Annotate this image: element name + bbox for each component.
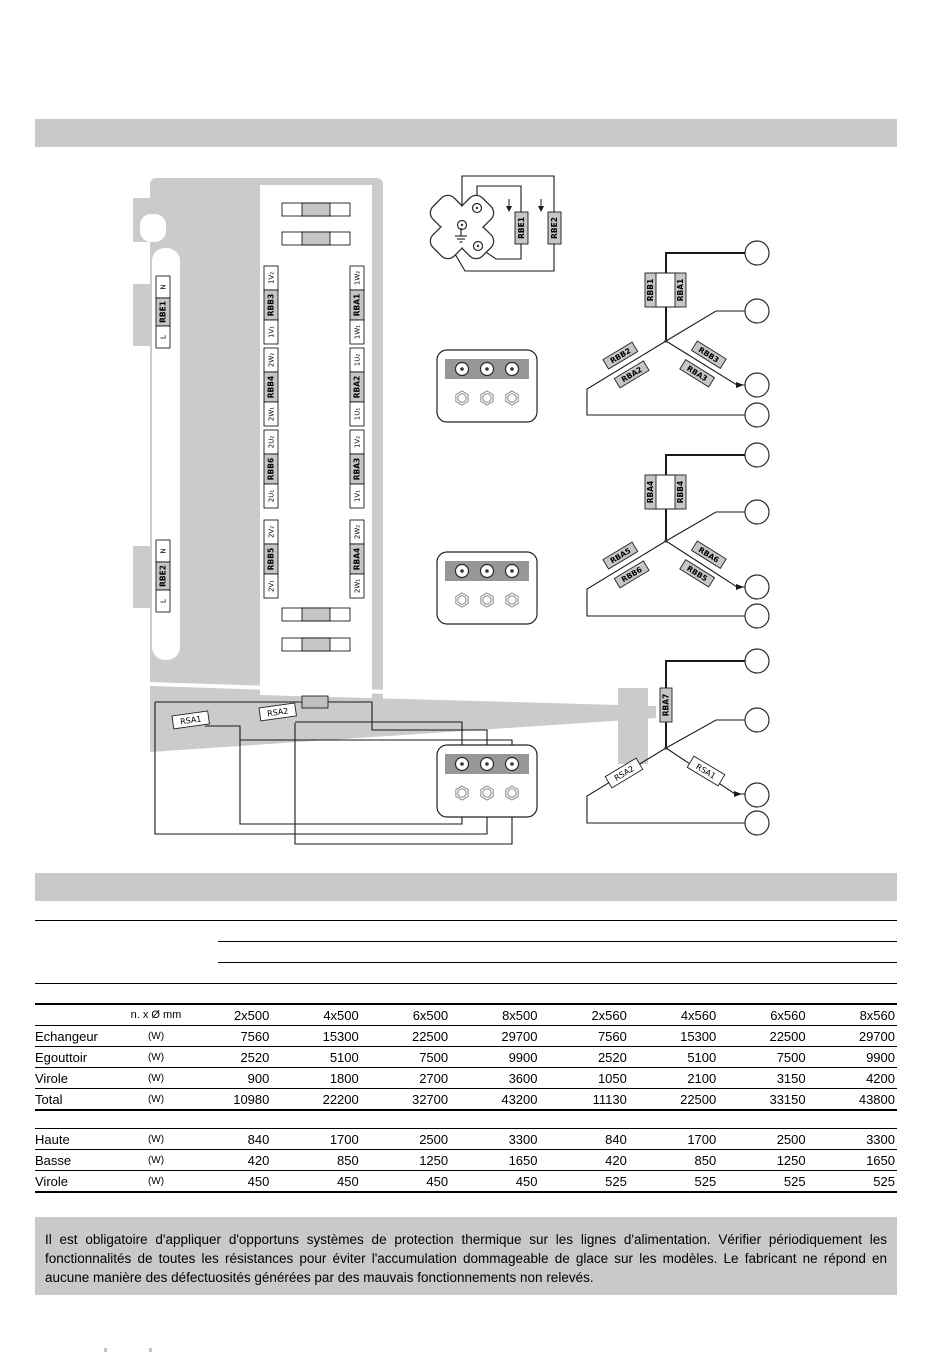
table-header-row: n. x Ø mm 2x500 4x500 6x500 8x500 2x560 …	[35, 1003, 897, 1026]
panel-label-rbb6: 2U₂ RBB6 2U₁	[264, 430, 278, 508]
column-header: 2x500	[182, 1008, 271, 1023]
svg-text:RBE1: RBE1	[517, 217, 526, 239]
svg-text:2V₁: 2V₁	[268, 580, 276, 592]
arrow-down-icon	[506, 199, 544, 212]
column-header: 8x500	[450, 1008, 539, 1023]
panel-label-rba1: 1W₂ RBA1 1W₁	[350, 266, 364, 344]
svg-text:RBA1: RBA1	[676, 279, 685, 302]
svg-text:RBE2: RBE2	[550, 217, 559, 239]
warning-note: Il est obligatoire d'appliquer d'opportu…	[35, 1217, 897, 1295]
table-row: Echangeur (W) 756015300 2250029700 75601…	[35, 1026, 897, 1047]
terminal-circle	[745, 604, 769, 628]
rule	[35, 920, 897, 921]
svg-text:RBB1: RBB1	[646, 279, 655, 301]
svg-text:RBE1: RBE1	[159, 301, 168, 323]
svg-text:1V₂: 1V₂	[268, 272, 276, 284]
column-header: 6x560	[718, 1008, 807, 1023]
svg-text:RBA4: RBA4	[353, 548, 362, 571]
svg-text:N: N	[160, 548, 168, 553]
svg-text:1V₂: 1V₂	[354, 436, 362, 448]
column-header: 6x500	[361, 1008, 450, 1023]
terminal-circle	[745, 708, 769, 732]
rule	[218, 941, 897, 942]
svg-text:1U₂: 1U₂	[354, 354, 362, 367]
svg-text:2W₂: 2W₂	[354, 525, 362, 539]
wye-circuit-3: RBA7 RSA2 RSA1	[587, 649, 769, 835]
panel-label-rba2: 1U₂ RBA2 1U₁	[350, 348, 364, 426]
rule	[218, 962, 897, 963]
wiring-diagram: N RBE1 L N RBE2 L 1V₂ RBB3 1V₁ 2W₂ RBB4 …	[0, 0, 950, 870]
terminal-circle	[745, 811, 769, 835]
terminal-circle	[745, 649, 769, 673]
svg-text:RBA1: RBA1	[353, 294, 362, 317]
svg-text:RBE2: RBE2	[159, 565, 168, 587]
svg-text:2W₂: 2W₂	[268, 353, 276, 367]
svg-text:2V₂: 2V₂	[268, 526, 276, 538]
panel-label-rbb5: 2V₂ RBB5 2V₁	[264, 520, 278, 598]
svg-text:RBB6: RBB6	[267, 458, 276, 480]
svg-text:1W₁: 1W₁	[354, 325, 362, 339]
table-row: Virole (W) 450450 450450 525525 525525	[35, 1171, 897, 1193]
size-header: n. x Ø mm	[130, 1009, 182, 1021]
svg-text:RBB4: RBB4	[267, 376, 276, 398]
terminal-circle	[745, 783, 769, 807]
edge-label-rbe1: N RBE1 L	[156, 276, 170, 348]
footer-artifact	[104, 1348, 107, 1352]
machine-silhouette	[133, 178, 656, 764]
table-section-band	[35, 873, 897, 901]
panel-label-rbb3: 1V₂ RBB3 1V₁	[264, 266, 278, 344]
terminal-circle	[745, 443, 769, 467]
table-row: Haute (W) 8401700 25003300 8401700 25003…	[35, 1128, 897, 1150]
svg-text:RBA2: RBA2	[353, 376, 362, 399]
svg-text:RBB5: RBB5	[267, 548, 276, 570]
terminal-block-1	[437, 350, 537, 422]
terminal-circle	[745, 299, 769, 323]
svg-text:N: N	[160, 284, 168, 289]
edge-label-rbe2: N RBE2 L	[156, 540, 170, 612]
panel-label-rba3: 1V₂ RBA3 1V₁	[350, 430, 364, 508]
rule	[35, 983, 897, 984]
table-row-total: Total (W) 1098022200 3270043200 11130225…	[35, 1089, 897, 1111]
terminal-circle	[745, 241, 769, 265]
svg-text:RBA4: RBA4	[646, 481, 655, 504]
svg-text:RBA7: RBA7	[662, 694, 671, 717]
terminal-circle	[745, 373, 769, 397]
terminal-circle	[745, 575, 769, 599]
svg-text:1V₁: 1V₁	[268, 326, 276, 338]
svg-text:1W₂: 1W₂	[354, 271, 362, 285]
svg-text:1V₁: 1V₁	[354, 490, 362, 502]
svg-text:2U₁: 2U₁	[268, 490, 276, 503]
warning-note-text: Il est obligatoire d'appliquer d'opportu…	[35, 1217, 897, 1287]
column-header: 2x560	[540, 1008, 629, 1023]
svg-text:L: L	[160, 599, 168, 603]
document-page: N RBE1 L N RBE2 L 1V₂ RBB3 1V₁ 2W₂ RBB4 …	[0, 0, 950, 1367]
panel-label-rba4: 2W₂ RBA4 2W₁	[350, 520, 364, 598]
column-header: 4x560	[629, 1008, 718, 1023]
power-table: n. x Ø mm 2x500 4x500 6x500 8x500 2x560 …	[35, 1003, 897, 1193]
svg-text:2W₁: 2W₁	[268, 407, 276, 421]
table-row: Basse (W) 420850 12501650 420850 1250165…	[35, 1150, 897, 1171]
svg-text:RBB3: RBB3	[267, 294, 276, 316]
table-row: Egouttoir (W) 25205100 75009900 25205100…	[35, 1047, 897, 1068]
terminal-block-3	[437, 745, 537, 817]
footer-artifact	[149, 1348, 152, 1352]
svg-text:L: L	[160, 335, 168, 339]
wye-circuit-1: RBB1 RBA1 RBB2 RBA2 RBB3 RBA3	[587, 241, 769, 427]
column-header: 4x500	[271, 1008, 360, 1023]
svg-text:1U₁: 1U₁	[354, 408, 362, 421]
svg-text:2W₁: 2W₁	[354, 579, 362, 593]
wye-circuit-2: RBA4 RBB4 RBA5 RBB6 RBA6 RBB5	[587, 443, 769, 628]
defrost-circuit: RBE1 RBE2	[413, 176, 561, 276]
table-gap	[35, 1111, 897, 1128]
svg-text:RBB4: RBB4	[676, 481, 685, 503]
terminal-circle	[745, 500, 769, 524]
svg-text:RBA3: RBA3	[353, 458, 362, 481]
column-header: 8x560	[808, 1008, 897, 1023]
tray-fuse	[302, 696, 328, 708]
terminal-circle	[745, 403, 769, 427]
terminal-block-2	[437, 552, 537, 624]
panel-label-rbb4: 2W₂ RBB4 2W₁	[264, 348, 278, 426]
svg-text:2U₂: 2U₂	[268, 436, 276, 449]
table-row: Virole (W) 9001800 27003600 10502100 315…	[35, 1068, 897, 1089]
